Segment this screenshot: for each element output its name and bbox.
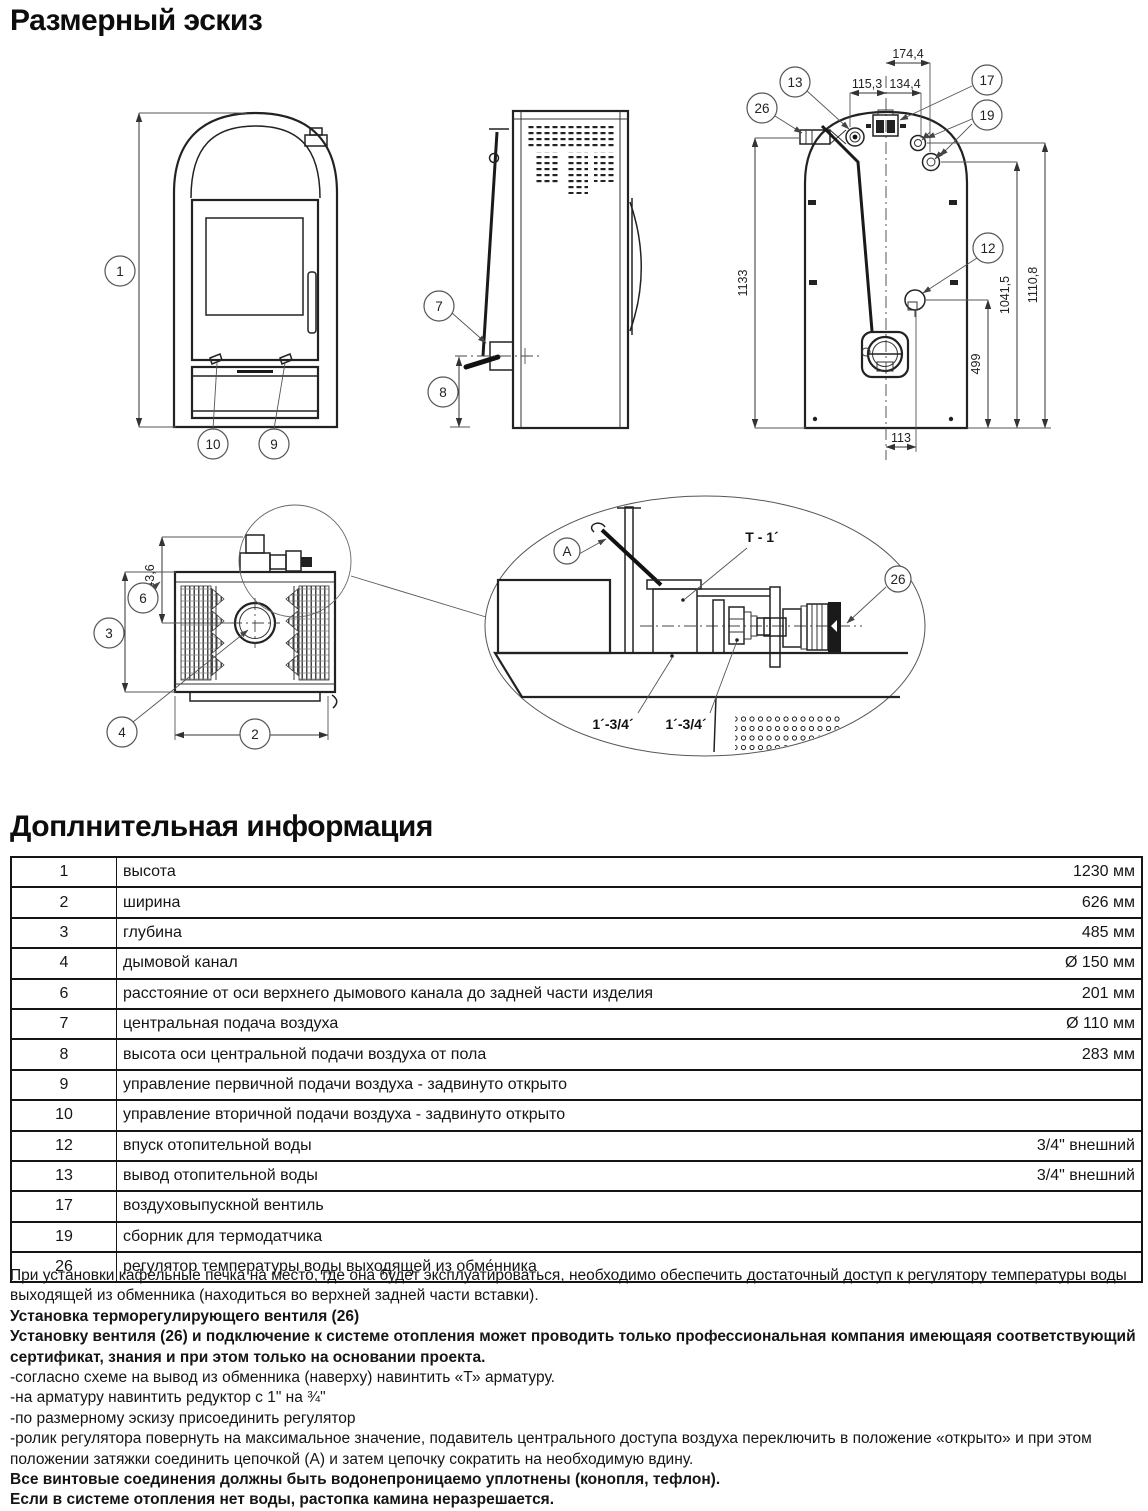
callout-9: 9 (259, 429, 289, 459)
callout-2-label: 2 (251, 727, 259, 742)
dim-499: 499 (969, 354, 983, 375)
dim-134-4: 134,4 (889, 77, 920, 91)
callout-26-detail-label: 26 (890, 572, 905, 587)
callout-10: 10 (198, 429, 228, 459)
row-value (924, 1070, 1142, 1100)
top-view: 143,6 6 3 4 2 (94, 505, 486, 749)
dim-1110-8: 1110,8 (1026, 267, 1040, 303)
row-value: 3/4" внешний (924, 1161, 1142, 1191)
row-label: глубина (117, 918, 925, 948)
note-paragraph: Все винтовые соединения должны быть водо… (10, 1470, 1140, 1490)
callout-3: 3 (94, 618, 124, 648)
callout-3-label: 3 (105, 626, 113, 641)
row-label: управление вторичной подачи воздуха - за… (117, 1100, 925, 1130)
row-label: расстояние от оси верхнего дымового кана… (117, 979, 925, 1009)
callout-12: 12 (973, 233, 1003, 263)
row-number: 3 (11, 918, 117, 948)
row-label: высота оси центральной подачи воздуха от… (117, 1039, 925, 1069)
callout-17-label: 17 (979, 73, 994, 88)
front-view: 1 10 9 (105, 113, 337, 459)
row-label: ширина (117, 887, 925, 917)
row-number: 10 (11, 1100, 117, 1130)
notes-section: При установки кафельные печка на место, … (10, 1266, 1140, 1511)
callout-26: 26 (747, 93, 777, 123)
callout-1-label: 1 (116, 264, 124, 279)
thread-label-2: 1´-3/4´ (665, 716, 707, 732)
row-value: 485 мм (924, 918, 1142, 948)
row-label: высота (117, 857, 925, 887)
callout-10-label: 10 (205, 437, 220, 452)
dimensional-drawing: 1 10 9 7 (0, 40, 1148, 815)
row-number: 13 (11, 1161, 117, 1191)
page-title: Размерный эскиз (10, 4, 262, 38)
row-number: 6 (11, 979, 117, 1009)
table-row: 17 воздуховыпускной вентиль (11, 1191, 1142, 1221)
dim-1041-5: 1041,5 (998, 276, 1012, 314)
row-value: Ø 150 мм (924, 948, 1142, 978)
row-number: 12 (11, 1131, 117, 1161)
dim-115-3: 115,3 (852, 77, 882, 91)
row-label: центральная подача воздуха (117, 1009, 925, 1039)
table-row: 3 глубина 485 мм (11, 918, 1142, 948)
rear-view: 1133 1110,8 1041,5 499 174,4 115,3 134,4… (736, 47, 1051, 460)
table-row: 13 вывод отопительной воды 3/4" внешний (11, 1161, 1142, 1191)
note-paragraph: Если в системе отопления нет воды, расто… (10, 1490, 1140, 1510)
note-paragraph: Установка терморегулирующего вентиля (26… (10, 1307, 1140, 1327)
callout-26-detail: 26 (885, 566, 911, 592)
callout-1: 1 (105, 256, 135, 286)
row-label: воздуховыпускной вентиль (117, 1191, 925, 1221)
dim-174-4: 174,4 (892, 47, 923, 61)
callout-8: 8 (428, 377, 458, 407)
callout-4-label: 4 (118, 725, 126, 740)
table-row: 8 высота оси центральной подачи воздуха … (11, 1039, 1142, 1069)
row-number: 4 (11, 948, 117, 978)
table-row: 9 управление первичной подачи воздуха - … (11, 1070, 1142, 1100)
perforated-panel (735, 714, 843, 761)
row-value (924, 1222, 1142, 1252)
dim-113: 113 (891, 431, 911, 445)
note-paragraph: -согласно схеме на вывод из обменника (н… (10, 1368, 1140, 1388)
table-row: 12 впуск отопительной воды 3/4" внешний (11, 1131, 1142, 1161)
side-view: 7 8 (424, 111, 641, 428)
row-number: 9 (11, 1070, 117, 1100)
row-label: впуск отопительной воды (117, 1131, 925, 1161)
callout-9-label: 9 (270, 437, 278, 452)
callout-19-label: 19 (979, 108, 994, 123)
row-value: 1230 мм (924, 857, 1142, 887)
vent-grille (526, 124, 616, 148)
row-value: 3/4" внешний (924, 1131, 1142, 1161)
thread-label-1: 1´-3/4´ (592, 716, 634, 732)
row-value (924, 1191, 1142, 1221)
note-paragraph: -ролик регулятора повернуть на максималь… (10, 1429, 1140, 1470)
table-row: 1 высота 1230 мм (11, 857, 1142, 887)
t-fitting-label: T - 1´ (745, 529, 779, 545)
dim-1133: 1133 (736, 270, 750, 297)
callout-7: 7 (424, 291, 454, 321)
section-title: Доплнительная информация (10, 810, 433, 844)
row-label: вывод отопительной воды (117, 1161, 925, 1191)
callout-a: A (554, 538, 580, 564)
table-row: 7 центральная подача воздуха Ø 110 мм (11, 1009, 1142, 1039)
table-row: 2 ширина 626 мм (11, 887, 1142, 917)
row-value (924, 1100, 1142, 1130)
row-label: сборник для термодатчика (117, 1222, 925, 1252)
row-label: дымовой канал (117, 948, 925, 978)
table-row: 19 сборник для термодатчика (11, 1222, 1142, 1252)
note-paragraph: Установку вентиля (26) и подключение к с… (10, 1327, 1140, 1368)
note-paragraph: -на арматуру навинтить редуктор с 1" на … (10, 1388, 1140, 1408)
row-number: 17 (11, 1191, 117, 1221)
door-handle (308, 272, 316, 333)
callout-4: 4 (107, 717, 137, 747)
note-paragraph: При установки кафельные печка на место, … (10, 1266, 1140, 1307)
callout-13-label: 13 (787, 75, 802, 90)
row-number: 19 (11, 1222, 117, 1252)
callout-6: 6 (128, 583, 158, 613)
row-value: Ø 110 мм (924, 1009, 1142, 1039)
row-number: 2 (11, 887, 117, 917)
callout-26-label: 26 (754, 101, 769, 116)
row-number: 1 (11, 857, 117, 887)
table-row: 6 расстояние от оси верхнего дымового ка… (11, 979, 1142, 1009)
row-value: 626 мм (924, 887, 1142, 917)
callout-12-label: 12 (980, 241, 995, 256)
sensor-pocket (911, 136, 926, 151)
callout-6-label: 6 (139, 591, 147, 606)
note-paragraph: -по размерному эскизу присоединить регул… (10, 1409, 1140, 1429)
callout-17: 17 (972, 65, 1002, 95)
callout-13: 13 (780, 67, 810, 97)
callout-7-label: 7 (435, 299, 443, 314)
detail-view: A 26 T - 1´ 1´-3/4´ 1´-3/4´ (485, 496, 925, 761)
row-number: 8 (11, 1039, 117, 1069)
callout-2: 2 (240, 719, 270, 749)
damper-rod (483, 132, 497, 356)
row-value: 283 мм (924, 1039, 1142, 1069)
row-number: 7 (11, 1009, 117, 1039)
callout-19: 19 (972, 100, 1002, 130)
heat-exchanger-fins-left (181, 586, 211, 680)
callout-a-label: A (562, 544, 571, 559)
row-label: управление первичной подачи воздуха - за… (117, 1070, 925, 1100)
heat-exchanger-fins-right (299, 586, 329, 680)
table-row: 4 дымовой канал Ø 150 мм (11, 948, 1142, 978)
row-value: 201 мм (924, 979, 1142, 1009)
table-row: 10 управление вторичной подачи воздуха -… (11, 1100, 1142, 1130)
info-table: 1 высота 1230 мм 2 ширина 626 мм 3 глуби… (10, 856, 1143, 1283)
callout-8-label: 8 (439, 385, 447, 400)
